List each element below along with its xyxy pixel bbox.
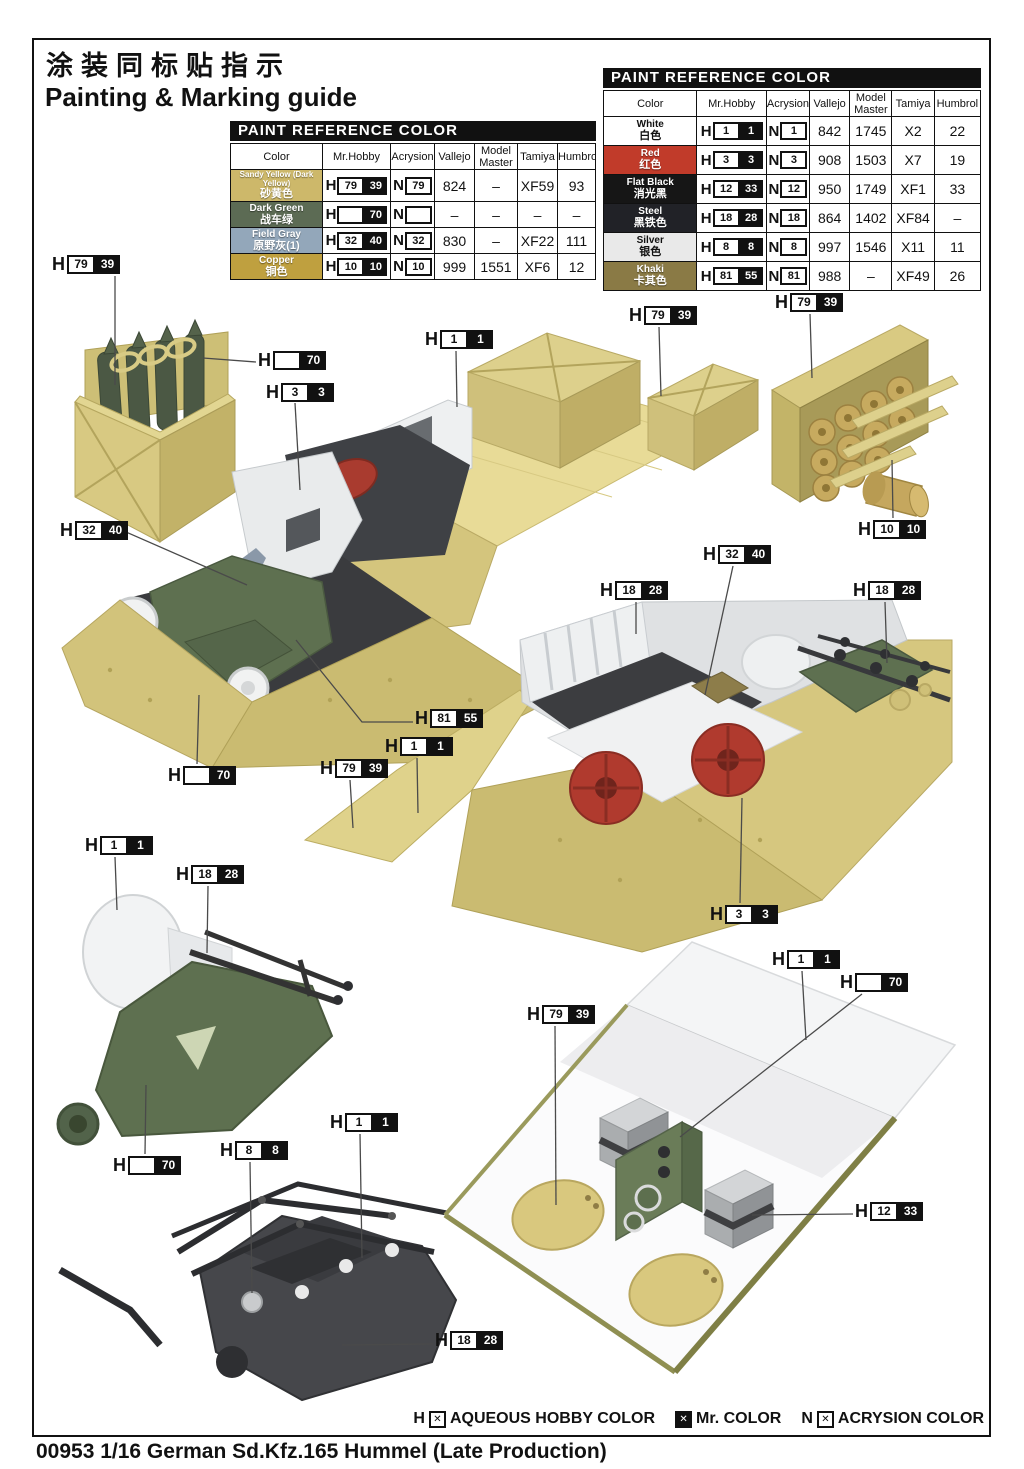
color-name-en: Khaki [604,264,696,275]
color-swatch-cell: Sandy Yellow (Dark Yellow)砂黄色 [231,170,323,202]
aqueous-code-box: 18 [713,209,740,227]
color-name-cn: 战车绿 [231,214,322,227]
humbrol-value: 26 [934,262,980,291]
aqueous-code-box: 10 [337,258,364,276]
paint-reference-table-left: PAINT REFERENCE COLORColorMr.HobbyAcrysi… [230,121,596,280]
engine-illustration [60,1184,462,1400]
shell-crate-illustration [75,320,235,542]
aqueous-code-box: 1 [713,122,740,140]
gun-cradle-illustration [58,895,353,1144]
tamiya-value: X2 [892,117,934,146]
h-prefix: H [701,152,712,169]
h-prefix: H [701,210,712,227]
model-master-value: 1546 [850,233,892,262]
model-master-value: 1749 [850,175,892,204]
floor-panel-illustration [445,942,955,1372]
vallejo-value: 830 [435,228,475,254]
column-header: Mr.Hobby [697,91,766,117]
h-prefix: H [701,268,712,285]
model-master-value: – [850,262,892,291]
tamiya-value: X7 [892,146,934,175]
mr-hobby-cell: H7939 [323,170,391,202]
color-name-cn: 砂黄色 [231,188,322,201]
color-swatch-cell: Khaki卡其色 [604,262,697,291]
aqueous-code-box: 81 [713,267,740,285]
mr-hobby-cell: H1828 [697,204,766,233]
acrysion-cell: N [391,202,435,228]
column-header: Model Master [850,91,892,117]
aqueous-code-box: 8 [713,238,740,256]
aqueous-code-box: 32 [337,232,364,250]
column-header: Acrysion [391,144,435,170]
mr-hobby-cell: H11 [697,117,766,146]
column-header: Tamiya [518,144,558,170]
color-name-en: Dark Green [231,203,322,214]
color-name-cn: 银色 [604,246,696,259]
paint-row: Sandy Yellow (Dark Yellow)砂黄色H7939N79824… [231,170,596,202]
paint-row: White白色H11N18421745X222 [604,117,981,146]
vallejo-value: 864 [810,204,850,233]
h-prefix: H [701,123,712,140]
color-name-cn: 黑铁色 [604,217,696,230]
aqueous-code-box: 12 [713,180,740,198]
mr-hobby-cell: H33 [697,146,766,175]
color-name-cn: 白色 [604,130,696,143]
humbrol-value: 11 [934,233,980,262]
acrysion-code-box: 18 [780,209,807,227]
mr-hobby-cell: H8155 [697,262,766,291]
n-prefix: N [769,181,780,198]
paint-table-title: PAINT REFERENCE COLOR [603,68,981,88]
paint-row: Steel黑铁色H1828N188641402XF84– [604,204,981,233]
column-header: Vallejo [435,144,475,170]
acrysion-code-box: 10 [405,258,432,276]
paint-table-column-row: ColorMr.HobbyAcrysionVallejoModel Master… [604,91,981,117]
h-prefix: H [326,258,337,275]
color-name-cn: 卡其色 [604,275,696,288]
h-prefix: H [326,206,337,223]
n-prefix: N [393,232,404,249]
column-header: Humbrol [558,144,596,170]
n-prefix: N [769,152,780,169]
color-swatch-cell: Field Gray原野灰(1) [231,228,323,254]
n-prefix: N [393,206,404,223]
vallejo-value: – [435,202,475,228]
vallejo-value: 842 [810,117,850,146]
checkbox-icon: ✕ [429,1411,446,1428]
color-swatch-cell: Silver银色 [604,233,697,262]
paint-row: Dark Green战车绿H70N–––– [231,202,596,228]
acrysion-code-box: 32 [405,232,432,250]
color-name-en: Field Gray [231,229,322,240]
charge-crate-illustration [772,325,958,519]
model-master-value: 1402 [850,204,892,233]
mr-color-code-box: 8 [740,238,763,256]
paint-table-grid: ColorMr.HobbyAcrysionVallejoModel Master… [230,143,596,280]
mr-hobby-cell: H70 [323,202,391,228]
model-master-value: – [475,170,518,202]
model-master-value: – [475,228,518,254]
acrysion-code-box: 3 [780,151,807,169]
mr-color-code-box: 70 [364,206,387,224]
n-prefix: N [393,177,404,194]
h-prefix: H [701,181,712,198]
callout-leader-line [810,314,812,378]
color-name-en: Flat Black [604,177,696,188]
checkbox-icon: ✕ [817,1411,834,1428]
legend-acrysion: N✕ ACRYSION COLOR [801,1410,984,1428]
acrysion-cell: N81 [766,262,809,291]
aqueous-code-box: 79 [337,177,364,195]
vallejo-value: 997 [810,233,850,262]
color-swatch-cell: Red红色 [604,146,697,175]
legend-acrysion-prefix: N [801,1410,813,1428]
paint-row: Silver银色H88N89971546X1111 [604,233,981,262]
legend-aqueous-prefix: H [413,1410,425,1428]
paint-row: Field Gray原野灰(1)H3240N32830–XF22111 [231,228,596,254]
tamiya-value: X11 [892,233,934,262]
acrysion-code-box: 81 [780,267,807,285]
mr-color-code-box: 3 [740,151,763,169]
color-swatch-cell: Flat Black消光黑 [604,175,697,204]
tamiya-value: XF22 [518,228,558,254]
acrysion-code-box: 12 [780,180,807,198]
paint-row: Red红色H33N39081503X719 [604,146,981,175]
color-name-cn: 消光黑 [604,188,696,201]
acrysion-cell: N8 [766,233,809,262]
painting-guide-page: 涂装同标贴指示 Painting & Marking guide [0,0,1024,1469]
mr-color-code-box: 39 [364,177,387,195]
kit-number-and-subject-title: 00953 1/16 German Sd.Kfz.165 Hummel (Lat… [36,1440,607,1464]
column-header: Tamiya [892,91,934,117]
tamiya-value: XF49 [892,262,934,291]
column-header: Mr.Hobby [323,144,391,170]
paint-row: Khaki卡其色H8155N81988–XF4926 [604,262,981,291]
vallejo-value: 950 [810,175,850,204]
paint-row: Copper铜色H1010N109991551XF612 [231,254,596,280]
humbrol-value: 12 [558,254,596,280]
color-swatch-cell: Copper铜色 [231,254,323,280]
paint-table-column-row: ColorMr.HobbyAcrysionVallejoModel Master… [231,144,596,170]
color-name-en: Copper [231,255,322,266]
humbrol-value: – [934,204,980,233]
humbrol-value: 93 [558,170,596,202]
n-prefix: N [769,268,780,285]
color-name-en: Silver [604,235,696,246]
mr-hobby-cell: H88 [697,233,766,262]
acrysion-cell: N1 [766,117,809,146]
tamiya-value: XF1 [892,175,934,204]
acrysion-cell: N12 [766,175,809,204]
h-prefix: H [326,177,337,194]
n-prefix: N [769,239,780,256]
humbrol-value: 33 [934,175,980,204]
acrysion-cell: N79 [391,170,435,202]
legend-mr-label: Mr. COLOR [696,1410,781,1428]
legend-aqueous: H✕ AQUEOUS HOBBY COLOR [413,1410,655,1428]
tamiya-value: XF84 [892,204,934,233]
column-header: Acrysion [766,91,809,117]
n-prefix: N [393,258,404,275]
color-name-en: White [604,119,696,130]
acrysion-code-box: 8 [780,238,807,256]
mr-color-code-box: 55 [740,267,763,285]
aqueous-code-box [337,206,364,224]
color-name-en: Red [604,148,696,159]
acrysion-cell: N32 [391,228,435,254]
color-swatch-cell: Dark Green战车绿 [231,202,323,228]
color-name-cn: 原野灰(1) [231,240,322,253]
paint-reference-table-right: PAINT REFERENCE COLORColorMr.HobbyAcrysi… [603,68,981,291]
humbrol-value: 19 [934,146,980,175]
humbrol-value: 111 [558,228,596,254]
model-master-value: 1503 [850,146,892,175]
acrysion-cell: N3 [766,146,809,175]
checkbox-filled-icon: ✕ [675,1411,692,1428]
color-name-cn: 红色 [604,159,696,172]
vallejo-value: 988 [810,262,850,291]
legend-aqueous-label: AQUEOUS HOBBY COLOR [450,1410,655,1428]
acrysion-code-box [405,206,432,224]
mr-color-code-box: 10 [364,258,387,276]
vallejo-value: 824 [435,170,475,202]
humbrol-value: – [558,202,596,228]
color-name-en: Steel [604,206,696,217]
column-header: Color [604,91,697,117]
tamiya-value: XF6 [518,254,558,280]
acrysion-code-box: 79 [405,177,432,195]
callout-leader-line [659,327,661,396]
mr-hobby-cell: H3240 [323,228,391,254]
vallejo-value: 908 [810,146,850,175]
mr-color-code-box: 40 [364,232,387,250]
model-master-value: 1551 [475,254,518,280]
humbrol-value: 22 [934,117,980,146]
column-header: Humbrol [934,91,980,117]
model-master-value: – [475,202,518,228]
paint-table-grid: ColorMr.HobbyAcrysionVallejoModel Master… [603,90,981,291]
aqueous-code-box: 3 [713,151,740,169]
acrysion-code-box: 1 [780,122,807,140]
column-header: Color [231,144,323,170]
mr-color-code-box: 1 [740,122,763,140]
mr-hobby-cell: H1233 [697,175,766,204]
color-swatch-cell: White白色 [604,117,697,146]
legend-acrysion-label: ACRYSION COLOR [838,1410,984,1428]
legend-mr-color: ✕ Mr. COLOR [675,1410,781,1428]
model-master-value: 1745 [850,117,892,146]
h-prefix: H [701,239,712,256]
acrysion-cell: N10 [391,254,435,280]
h-prefix: H [326,232,337,249]
color-name-cn: 铜色 [231,266,322,279]
color-name-en: Sandy Yellow (Dark Yellow) [231,170,322,188]
mr-color-code-box: 33 [740,180,763,198]
vallejo-value: 999 [435,254,475,280]
column-header: Model Master [475,144,518,170]
mr-color-code-box: 28 [740,209,763,227]
color-system-legend: H✕ AQUEOUS HOBBY COLOR ✕ Mr. COLOR N✕ AC… [413,1410,984,1428]
n-prefix: N [769,210,780,227]
callout-leader-line [456,351,457,407]
paint-table-title: PAINT REFERENCE COLOR [230,121,596,141]
n-prefix: N [769,123,780,140]
acrysion-cell: N18 [766,204,809,233]
tamiya-value: – [518,202,558,228]
paint-row: Flat Black消光黑H1233N129501749XF133 [604,175,981,204]
color-swatch-cell: Steel黑铁色 [604,204,697,233]
column-header: Vallejo [810,91,850,117]
mr-hobby-cell: H1010 [323,254,391,280]
tamiya-value: XF59 [518,170,558,202]
